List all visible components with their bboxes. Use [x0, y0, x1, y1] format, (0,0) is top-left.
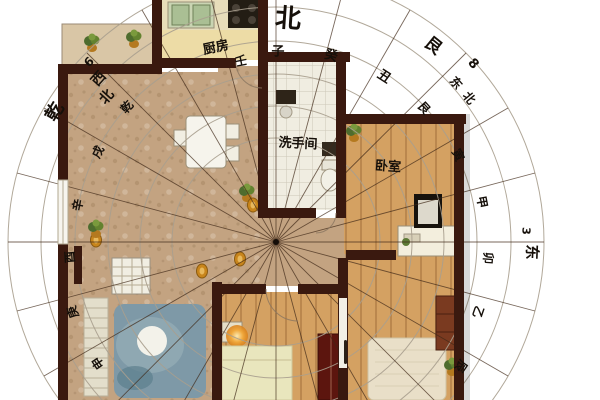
dining-chair [226, 124, 239, 139]
wall-living-top [58, 64, 162, 74]
wall-bottomcenter-top-a [216, 284, 266, 294]
wall-bath-left [258, 52, 268, 218]
ring-char-chou: 丑 [374, 67, 393, 87]
door-handle [344, 340, 347, 364]
label-north: 北 [274, 3, 302, 35]
sink-basin [172, 5, 189, 25]
dining-chair [174, 130, 186, 146]
bedside-lamp [226, 325, 248, 347]
balcony-floor [62, 24, 154, 66]
bathroom-sink [280, 106, 292, 118]
label-ne-dir-2: 北 [460, 88, 479, 107]
wall-bedroom-bottom [346, 250, 396, 260]
round-pillow [137, 326, 167, 356]
fengshui-floorplan: 北 乾 6 西 北 乾 戌 辛 酉 庚 申 厨房 壬 子 癸 丑 艮 8 东 北… [0, 0, 600, 400]
wall-bottomleft-divider [212, 282, 222, 400]
ring-char-jia: 甲 [474, 195, 490, 209]
label-east-number: 3 [519, 227, 532, 235]
rug-shade [117, 366, 153, 390]
gold-pot-icon [235, 252, 246, 266]
sink-basin [193, 5, 210, 25]
gold-pot-icon [248, 198, 259, 212]
stove [228, 0, 262, 28]
burner [248, 16, 256, 24]
label-east-name: 东 [523, 244, 542, 260]
ring-char-mao: 卯 [481, 252, 497, 265]
dresser [436, 296, 456, 350]
gold-pot-icon [197, 264, 208, 278]
wall-bath-bottom [258, 208, 316, 218]
label-ne-number: 8 [464, 56, 481, 73]
wall-bottomcenter-top-b [298, 284, 344, 294]
ring-char-yi: 乙 [469, 304, 486, 320]
label-ne-trigram-outer: 艮 [420, 33, 447, 60]
ring-char-you: 酉 [63, 251, 78, 264]
burner [232, 16, 240, 24]
wall-kitchen-right [258, 0, 268, 60]
wall-bedroom-top [346, 114, 466, 124]
label-bedroom: 卧室 [375, 158, 402, 176]
wall-bath-right [336, 52, 346, 218]
label-ne-dir-1: 东 [447, 73, 466, 92]
compass-center-dot [273, 239, 279, 245]
label-bathroom: 洗手间 [278, 134, 318, 152]
fengshui-floorplan-page: 北 乾 6 西 北 乾 戌 辛 酉 庚 申 厨房 壬 子 癸 丑 艮 8 东 北… [0, 0, 600, 400]
bathroom-vanity [276, 90, 296, 104]
dining-table [186, 116, 226, 168]
bed [222, 346, 292, 400]
wall-kitchen-bottom [152, 58, 236, 68]
ring-char-zi: 子 [271, 44, 284, 59]
